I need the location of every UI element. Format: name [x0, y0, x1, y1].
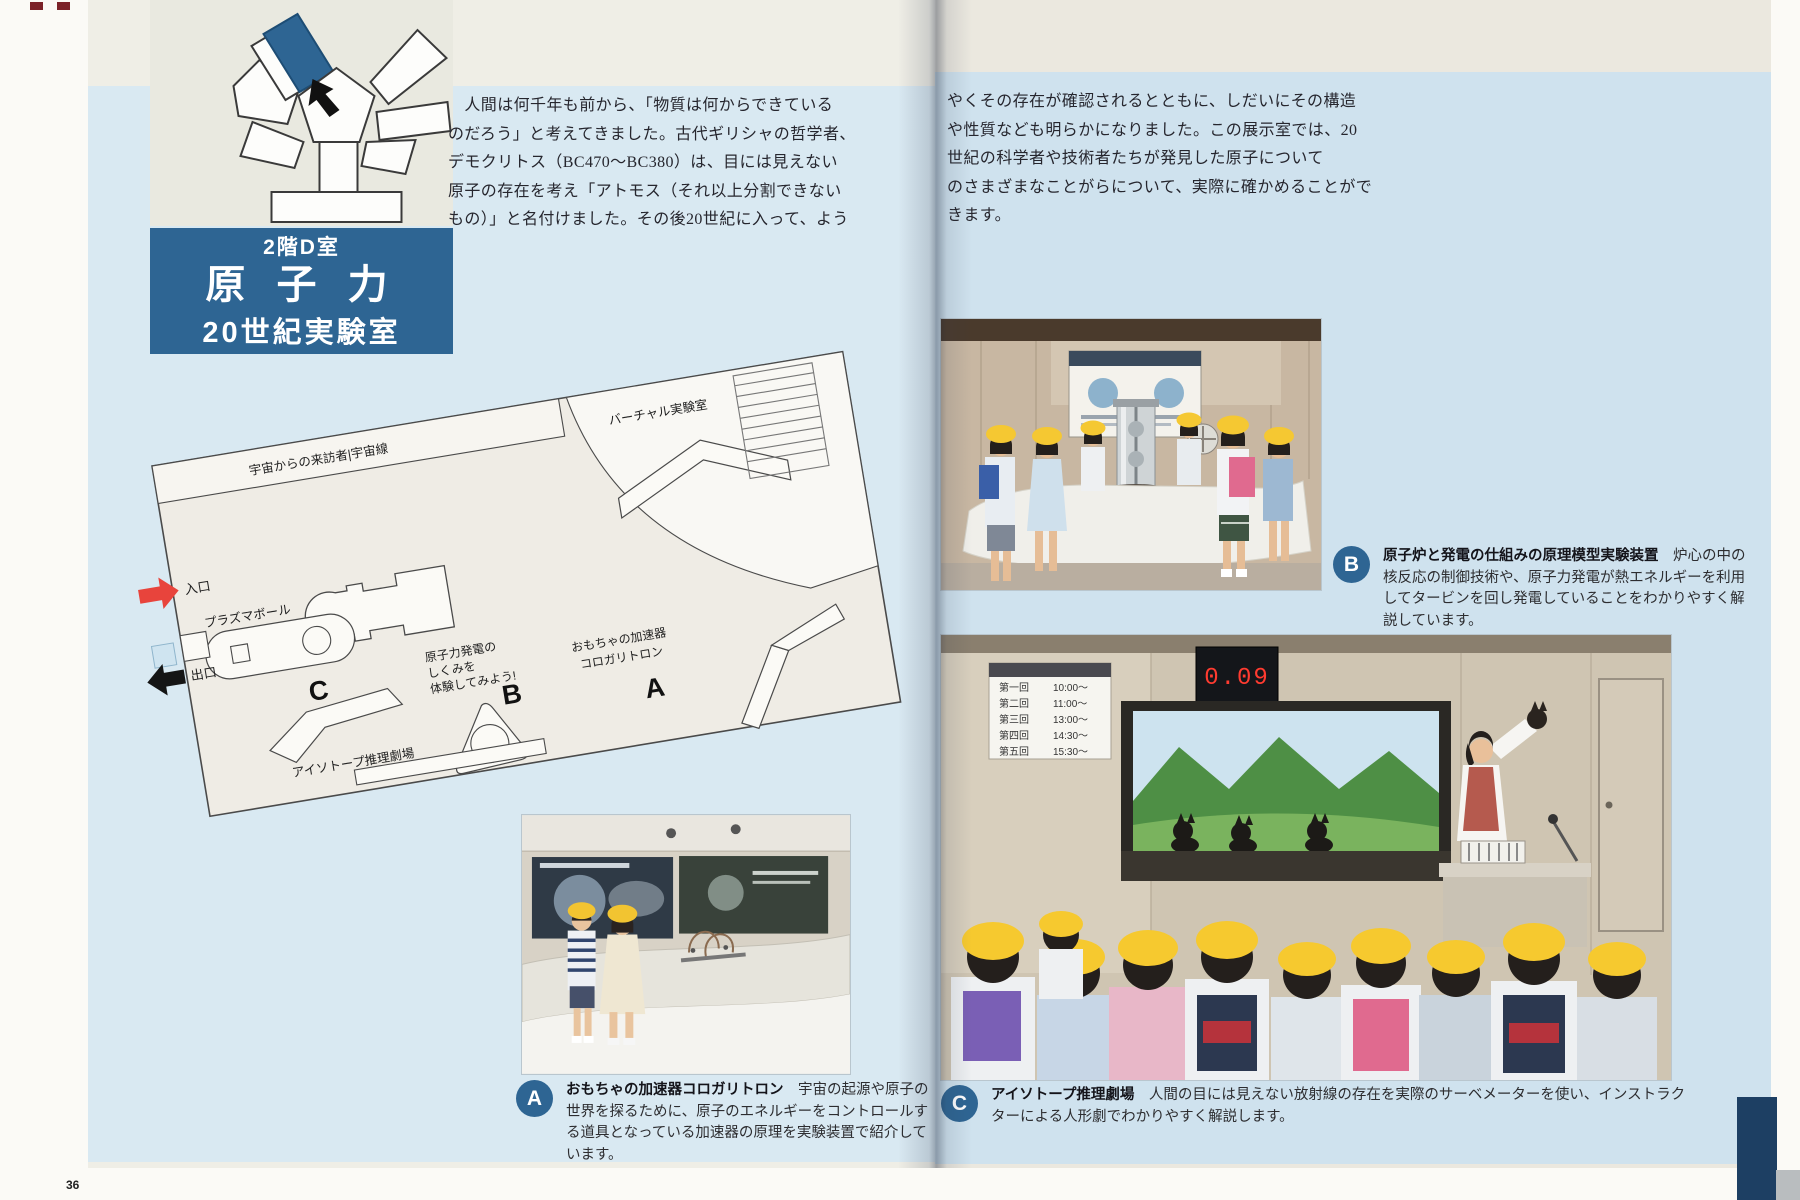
scan-edge: [1776, 1170, 1800, 1200]
puppet-stage: [1121, 701, 1451, 881]
photo-b: [941, 319, 1321, 590]
schedule-row-time: 13:00～: [1053, 715, 1088, 726]
schedule-row-label: 第二回: [999, 697, 1029, 710]
page-number: 36: [66, 1178, 79, 1192]
clock-readout: 0.09: [1204, 665, 1270, 692]
caption-a: A おもちゃの加速器コロガリトロン 宇宙の起源や原子の世界を探るために、原子のエ…: [516, 1080, 940, 1166]
wing: [362, 140, 416, 174]
digital-clock: 0.09: [1196, 647, 1278, 703]
pedestal: [320, 142, 358, 192]
schedule-row-time: 11:00～: [1053, 699, 1087, 710]
caption-c-title: アイソトープ推理劇場: [991, 1087, 1134, 1103]
map-small-kiosk: [180, 631, 210, 661]
print-mark: [57, 2, 70, 10]
schedule-row-label: 第一回: [999, 681, 1029, 694]
caption-b-title: 原子炉と発電の仕組みの原理模型実験装置: [1383, 548, 1659, 564]
print-mark: [30, 2, 43, 10]
room-title: 原 子 力: [205, 261, 397, 309]
schedule-row-label: 第四回: [999, 729, 1029, 742]
schedule-row-time: 10:00～: [1053, 683, 1088, 694]
caption-b: B 原子炉と発電の仕組みの原理模型実験装置 炉心の中の核反応の制御技術や、原子力…: [1333, 546, 1757, 632]
photo-c: 第一回 10:00～ 第二回 11:00～ 第三回 13:00～ 第四回 14:…: [941, 635, 1671, 1080]
intro-paragraph-right: やくその存在が確認されるとともに、しだいにその構造 や性質なども明らかになりまし…: [947, 88, 1377, 231]
floor-map: 宇宙からの来訪者|宇宙線 バーチャル実験室 プラズマボール: [125, 330, 905, 835]
wing: [371, 30, 447, 104]
page-tab: [1737, 1097, 1777, 1200]
schedule-row-label: 第三回: [999, 713, 1029, 726]
wing: [241, 122, 304, 168]
ceiling: [522, 815, 850, 851]
schedule-row-label: 第五回: [999, 745, 1029, 758]
intro-paragraph-left: 人間は何千年も前から、「物質は何からできている のだろう」と考えてきました。古代…: [448, 92, 868, 235]
photo-a: [522, 815, 850, 1074]
exhibit-island-counter: [963, 481, 1311, 568]
caption-a-title: おもちゃの加速器コロガリトロン: [566, 1082, 784, 1098]
schedule-row-time: 15:30～: [1053, 747, 1088, 758]
visitor-child: [1177, 413, 1202, 486]
schedule-board: 第一回 10:00～ 第二回 11:00～ 第三回 13:00～ 第四回 14:…: [989, 663, 1111, 759]
room-floor-label: 2階D室: [263, 231, 340, 261]
map-outside-kiosk: [151, 643, 176, 668]
door: [1599, 679, 1663, 931]
wing: [377, 102, 451, 140]
base: [272, 192, 402, 222]
caption-a-marker: A: [516, 1080, 553, 1117]
book-spread: 2階D室 原 子 力 20世紀実験室 人間は何千年も前から、「物質は何からできて…: [0, 0, 1800, 1200]
page-fold: [898, 0, 972, 1168]
building-floor-icon: [150, 0, 453, 226]
floor-locator-box: [150, 0, 453, 226]
caption-b-marker: B: [1333, 546, 1370, 583]
schedule-row-time: 14:30～: [1053, 731, 1088, 742]
caption-c: C アイソトープ推理劇場 人間の目には見えない放射線の存在を実際のサーベメーター…: [941, 1085, 1693, 1128]
visitor-child: [1081, 421, 1106, 492]
